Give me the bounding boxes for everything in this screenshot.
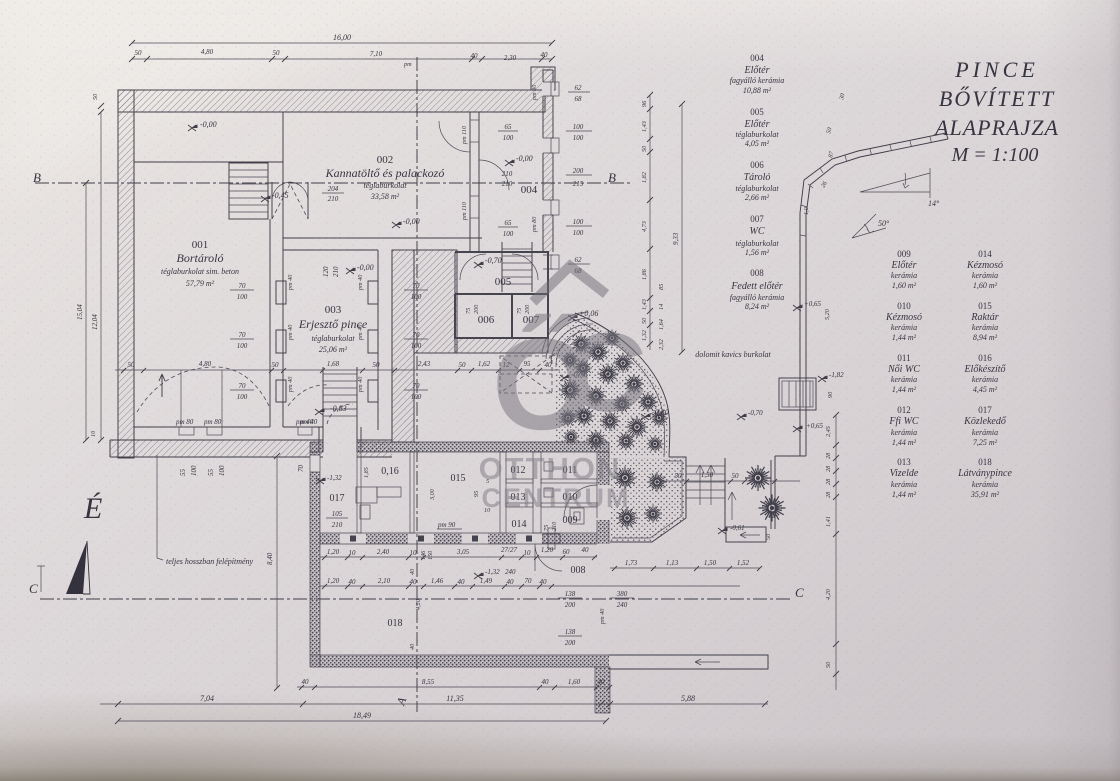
- svg-text:Kézmosó: Kézmosó: [966, 260, 1003, 271]
- svg-text:50°: 50°: [878, 219, 890, 228]
- svg-text:002: 002: [377, 154, 394, 166]
- svg-text:50: 50: [765, 533, 772, 540]
- svg-text:25,06 m²: 25,06 m²: [319, 345, 348, 354]
- svg-text:70: 70: [413, 282, 421, 290]
- svg-text:1,68: 1,68: [327, 360, 340, 368]
- svg-text:004: 004: [521, 184, 538, 196]
- svg-text:pm 80: pm 80: [531, 84, 538, 101]
- svg-text:28: 28: [825, 491, 832, 498]
- svg-text:teljes hosszban felépítmény: teljes hosszban felépítmény: [166, 557, 254, 566]
- svg-text:16,00: 16,00: [333, 33, 351, 42]
- svg-text:pm 80: pm 80: [531, 216, 538, 233]
- svg-text:015: 015: [451, 473, 466, 484]
- svg-text:1,60 m²: 1,60 m²: [973, 281, 998, 290]
- svg-text:68: 68: [575, 95, 583, 103]
- svg-text:50: 50: [128, 361, 136, 369]
- svg-text:1,0: 1,0: [803, 206, 810, 215]
- svg-text:0,16: 0,16: [381, 466, 399, 477]
- svg-text:210: 210: [332, 521, 343, 529]
- svg-text:-0,45: -0,45: [272, 191, 289, 200]
- svg-text:62: 62: [575, 84, 583, 92]
- svg-text:pm 40: pm 40: [287, 274, 294, 291]
- svg-text:210: 210: [502, 180, 513, 188]
- svg-text:pm 40: pm 40: [287, 376, 294, 393]
- svg-text:7,25 m²: 7,25 m²: [973, 438, 998, 447]
- svg-text:016: 016: [978, 353, 992, 363]
- svg-text:1,60 m²: 1,60 m²: [892, 281, 917, 290]
- svg-text:2,40: 2,40: [377, 548, 390, 556]
- svg-text:40: 40: [409, 643, 416, 650]
- svg-text:-0,60: -0,60: [652, 408, 669, 417]
- svg-text:kerámia: kerámia: [891, 480, 917, 489]
- svg-text:40: 40: [598, 678, 606, 686]
- svg-text:75: 75: [465, 308, 472, 314]
- svg-text:Közlekedő: Közlekedő: [963, 416, 1007, 427]
- svg-text:pm 40: pm 40: [295, 418, 314, 426]
- svg-text:100: 100: [503, 230, 514, 238]
- svg-text:2,45: 2,45: [825, 426, 832, 437]
- svg-text:4,80: 4,80: [201, 48, 214, 56]
- svg-text:014: 014: [978, 249, 992, 259]
- svg-text:1,41: 1,41: [825, 516, 832, 527]
- svg-text:70: 70: [239, 282, 247, 290]
- svg-text:50: 50: [373, 361, 381, 369]
- svg-text:96: 96: [641, 100, 648, 107]
- svg-text:pm 40: pm 40: [357, 324, 364, 341]
- svg-text:50: 50: [641, 145, 648, 152]
- svg-text:150: 150: [427, 550, 434, 560]
- svg-text:-0,70: -0,70: [485, 256, 502, 265]
- svg-text:pm 110: pm 110: [461, 201, 468, 221]
- svg-text:-0,61: -0,61: [730, 524, 745, 532]
- svg-text:8,55: 8,55: [422, 678, 435, 686]
- svg-text:40: 40: [507, 578, 515, 586]
- svg-text:Kézmosó: Kézmosó: [885, 312, 922, 323]
- svg-text:fagyálló kerámia: fagyálló kerámia: [730, 293, 784, 302]
- svg-text:kerámia: kerámia: [891, 271, 917, 280]
- svg-text:28: 28: [825, 478, 832, 485]
- svg-text:Raktár: Raktár: [970, 312, 998, 323]
- svg-text:4,05 m²: 4,05 m²: [745, 139, 770, 148]
- svg-text:85: 85: [658, 284, 665, 290]
- svg-text:017: 017: [978, 405, 992, 415]
- svg-text:Előtér: Előtér: [744, 65, 770, 76]
- svg-text:50: 50: [272, 361, 280, 369]
- svg-text:210: 210: [328, 195, 339, 203]
- svg-text:40: 40: [410, 578, 418, 586]
- svg-text:1,43: 1,43: [641, 299, 648, 310]
- svg-text:Női WC: Női WC: [887, 364, 920, 375]
- svg-text:5,20: 5,20: [824, 308, 831, 320]
- svg-text:C: C: [566, 310, 647, 435]
- svg-text:Előkészítő: Előkészítő: [963, 364, 1006, 375]
- svg-text:40: 40: [541, 51, 549, 59]
- svg-text:7,10: 7,10: [370, 50, 383, 58]
- svg-text:70: 70: [413, 382, 421, 390]
- svg-text:100: 100: [411, 342, 422, 350]
- svg-text:M = 1:100: M = 1:100: [951, 144, 1039, 166]
- svg-text:005: 005: [750, 107, 764, 117]
- svg-text:50: 50: [675, 472, 683, 480]
- svg-text:pm 80: pm 80: [175, 418, 194, 426]
- svg-text:138: 138: [565, 628, 576, 636]
- svg-text:50: 50: [273, 49, 281, 57]
- svg-text:+0,65: +0,65: [804, 300, 821, 308]
- svg-text:017: 017: [330, 493, 345, 504]
- svg-text:70: 70: [525, 577, 533, 585]
- svg-text:210: 210: [551, 521, 558, 531]
- svg-text:C: C: [795, 585, 804, 600]
- svg-text:8,94 m²: 8,94 m²: [973, 333, 998, 342]
- svg-text:50: 50: [135, 49, 143, 57]
- svg-text:kerámia: kerámia: [891, 428, 917, 437]
- svg-text:Vizelde: Vizelde: [890, 468, 919, 479]
- svg-text:18,49: 18,49: [353, 711, 371, 720]
- svg-text:8,40: 8,40: [266, 552, 274, 565]
- svg-text:pm 40: pm 40: [599, 608, 606, 625]
- svg-text:62: 62: [575, 256, 583, 264]
- svg-text:10: 10: [524, 549, 532, 557]
- svg-text:pm 80: pm 80: [203, 418, 222, 426]
- svg-text:1,46: 1,46: [431, 577, 444, 585]
- svg-text:40: 40: [458, 578, 466, 586]
- svg-text:kerámia: kerámia: [972, 428, 998, 437]
- svg-text:PINCE: PINCE: [954, 57, 1039, 82]
- svg-text:100: 100: [573, 218, 584, 226]
- svg-text:200: 200: [565, 601, 576, 609]
- svg-text:27/27: 27/27: [501, 546, 517, 554]
- svg-text:50: 50: [825, 661, 832, 668]
- svg-text:004: 004: [750, 53, 764, 63]
- svg-text:4,73: 4,73: [641, 221, 648, 232]
- svg-text:1,43: 1,43: [641, 121, 648, 132]
- svg-text:kerámia: kerámia: [891, 375, 917, 384]
- svg-text:011: 011: [897, 353, 910, 363]
- svg-text:018: 018: [388, 618, 403, 629]
- svg-text:40: 40: [540, 578, 548, 586]
- svg-text:1,56 m²: 1,56 m²: [745, 248, 770, 257]
- svg-text:-0,00: -0,00: [200, 120, 217, 129]
- svg-text:200: 200: [565, 639, 576, 647]
- svg-text:pm 40: pm 40: [357, 274, 364, 291]
- svg-text:70: 70: [413, 331, 421, 339]
- svg-text:28: 28: [825, 465, 832, 472]
- svg-text:240: 240: [505, 568, 516, 576]
- svg-text:210: 210: [332, 266, 340, 277]
- svg-text:65: 65: [505, 219, 513, 227]
- svg-text:007: 007: [750, 214, 764, 224]
- svg-text:012: 012: [897, 405, 911, 415]
- svg-text:Fedett előtér: Fedett előtér: [730, 281, 782, 292]
- svg-text:003: 003: [325, 304, 342, 316]
- svg-text:009: 009: [897, 249, 911, 259]
- svg-text:1,60: 1,60: [568, 678, 581, 686]
- svg-text:-0,70: -0,70: [748, 409, 763, 417]
- svg-text:200: 200: [573, 167, 584, 175]
- svg-text:pm 40: pm 40: [357, 376, 364, 393]
- svg-text:10: 10: [410, 549, 418, 557]
- svg-text:100: 100: [573, 229, 584, 237]
- svg-text:-1,82: -1,82: [829, 371, 844, 379]
- svg-text:2,43: 2,43: [418, 360, 431, 368]
- svg-text:3,05: 3,05: [456, 548, 470, 556]
- svg-text:1,86: 1,86: [641, 268, 648, 280]
- svg-text:kerámia: kerámia: [972, 323, 998, 332]
- svg-text:28: 28: [825, 452, 832, 459]
- svg-text:Kannatöltő és palackozó: Kannatöltő és palackozó: [325, 166, 445, 180]
- svg-text:010: 010: [897, 301, 911, 311]
- svg-text:-0,00: -0,00: [357, 263, 374, 272]
- svg-text:OTTHON: OTTHON: [479, 451, 622, 486]
- svg-text:100: 100: [218, 465, 226, 476]
- svg-text:008: 008: [571, 565, 586, 576]
- svg-text:2,10: 2,10: [378, 577, 391, 585]
- svg-text:120: 120: [322, 266, 330, 277]
- svg-text:téglaburkolat: téglaburkolat: [735, 184, 779, 193]
- svg-text:70: 70: [239, 331, 247, 339]
- svg-text:40: 40: [542, 678, 550, 686]
- svg-text:11,35: 11,35: [446, 694, 463, 703]
- svg-text:pm 40: pm 40: [287, 324, 294, 341]
- svg-text:013: 013: [897, 457, 911, 467]
- svg-text:1,20: 1,20: [327, 548, 340, 556]
- svg-text:70: 70: [239, 382, 247, 390]
- svg-text:006: 006: [750, 160, 764, 170]
- svg-text:1,13: 1,13: [666, 559, 679, 567]
- svg-text:100: 100: [573, 134, 584, 142]
- svg-text:4,20: 4,20: [415, 598, 422, 610]
- svg-text:WC: WC: [750, 226, 765, 237]
- svg-text:008: 008: [750, 268, 764, 278]
- svg-text:1,82: 1,82: [641, 172, 648, 183]
- svg-text:CENTRUM: CENTRUM: [482, 483, 631, 513]
- svg-text:50: 50: [732, 472, 740, 480]
- svg-text:4,20: 4,20: [825, 588, 832, 600]
- svg-text:65: 65: [505, 123, 513, 131]
- svg-text:55: 55: [179, 469, 187, 477]
- svg-text:1,50: 1,50: [704, 559, 717, 567]
- svg-text:1,62: 1,62: [478, 360, 491, 368]
- svg-text:1,52: 1,52: [737, 559, 750, 567]
- svg-text:100: 100: [237, 342, 248, 350]
- svg-text:95: 95: [473, 491, 480, 497]
- svg-text:1,44 m²: 1,44 m²: [892, 385, 917, 394]
- svg-text:215: 215: [573, 180, 584, 188]
- svg-text:50: 50: [459, 361, 467, 369]
- svg-text:B: B: [33, 170, 41, 185]
- svg-text:fagyálló kerámia: fagyálló kerámia: [730, 76, 784, 85]
- svg-text:100: 100: [190, 465, 198, 476]
- svg-text:105: 105: [332, 510, 343, 518]
- svg-text:dolomit kavics burkolat: dolomit kavics burkolat: [695, 350, 771, 359]
- svg-text:14°: 14°: [928, 199, 940, 208]
- svg-text:33,58 m²: 33,58 m²: [370, 192, 400, 201]
- svg-text:204: 204: [328, 185, 339, 193]
- svg-text:1,20: 1,20: [541, 546, 554, 554]
- svg-text:É: É: [83, 492, 102, 525]
- svg-text:téglaburkolat: téglaburkolat: [735, 239, 779, 248]
- svg-text:70: 70: [757, 471, 765, 479]
- svg-text:60: 60: [563, 548, 571, 556]
- svg-text:70: 70: [297, 465, 305, 473]
- svg-text:100: 100: [573, 123, 584, 131]
- svg-text:40: 40: [471, 52, 479, 60]
- svg-text:BŐVÍTETT: BŐVÍTETT: [939, 86, 1055, 111]
- svg-text:pm: pm: [403, 61, 412, 68]
- svg-text:40: 40: [302, 678, 310, 686]
- svg-text:ALAPRAJZA: ALAPRAJZA: [933, 115, 1059, 140]
- svg-text:8,24 m²: 8,24 m²: [745, 302, 770, 311]
- svg-text:téglaburkolat: téglaburkolat: [735, 130, 779, 139]
- svg-text:téglaburkolat sim. beton: téglaburkolat sim. beton: [161, 267, 239, 276]
- svg-text:pm 110: pm 110: [461, 125, 468, 145]
- svg-text:C: C: [29, 581, 38, 596]
- svg-text:4,80: 4,80: [199, 360, 212, 368]
- svg-text:kerámia: kerámia: [972, 480, 998, 489]
- svg-text:005: 005: [495, 276, 512, 288]
- svg-text:10: 10: [90, 430, 97, 437]
- svg-text:-0,83: -0,83: [330, 404, 347, 413]
- svg-text:15,04: 15,04: [76, 304, 84, 320]
- svg-text:210: 210: [502, 170, 513, 178]
- svg-text:+0,65: +0,65: [806, 422, 823, 430]
- svg-text:Bortároló: Bortároló: [177, 251, 224, 265]
- svg-text:1,73: 1,73: [625, 559, 638, 567]
- svg-text:5,88: 5,88: [681, 694, 695, 703]
- svg-text:Ffi WC: Ffi WC: [888, 416, 918, 427]
- svg-text:kerámia: kerámia: [972, 271, 998, 280]
- svg-text:B: B: [608, 170, 616, 185]
- svg-text:1,64: 1,64: [658, 319, 665, 330]
- svg-text:-1,32: -1,32: [327, 474, 342, 482]
- svg-text:100: 100: [503, 134, 514, 142]
- svg-text:1,44 m²: 1,44 m²: [892, 333, 917, 342]
- svg-text:014: 014: [512, 519, 527, 530]
- svg-text:200: 200: [473, 304, 480, 314]
- svg-text:12,04: 12,04: [91, 314, 99, 330]
- svg-text:Látványpince: Látványpince: [957, 468, 1012, 479]
- svg-text:1,20: 1,20: [327, 577, 340, 585]
- svg-text:100: 100: [411, 393, 422, 401]
- svg-text:7,04: 7,04: [200, 694, 214, 703]
- svg-text:100: 100: [411, 293, 422, 301]
- svg-text:35,91 m²: 35,91 m²: [970, 490, 1000, 499]
- svg-text:240: 240: [617, 601, 628, 609]
- svg-text:40: 40: [409, 568, 416, 575]
- svg-text:10: 10: [349, 549, 357, 557]
- svg-text:pm 90: pm 90: [437, 521, 456, 529]
- svg-text:90: 90: [827, 391, 834, 398]
- svg-text:2,30: 2,30: [504, 54, 517, 62]
- svg-text:1,44 m²: 1,44 m²: [892, 438, 917, 447]
- svg-text:-1,32: -1,32: [485, 568, 500, 576]
- svg-text:50: 50: [92, 93, 99, 100]
- svg-text:001: 001: [192, 239, 209, 251]
- svg-text:14: 14: [658, 304, 665, 310]
- svg-text:138: 138: [565, 590, 576, 598]
- svg-text:téglaburkolat: téglaburkolat: [311, 334, 355, 343]
- svg-text:Előtér: Előtér: [744, 119, 770, 130]
- svg-text:1,50: 1,50: [701, 471, 714, 479]
- svg-text:2,32: 2,32: [658, 339, 665, 350]
- svg-text:40: 40: [582, 546, 590, 554]
- svg-text:57,79 m²: 57,79 m²: [186, 279, 215, 288]
- svg-text:1,49: 1,49: [480, 577, 493, 585]
- svg-text:1,44 m²: 1,44 m²: [892, 490, 917, 499]
- svg-text:55: 55: [207, 469, 215, 477]
- svg-text:380: 380: [616, 590, 628, 598]
- svg-text:100: 100: [237, 393, 248, 401]
- svg-text:9,33: 9,33: [672, 232, 680, 245]
- svg-text:kerámia: kerámia: [972, 375, 998, 384]
- svg-text:4,45 m²: 4,45 m²: [973, 385, 998, 394]
- svg-text:3,00: 3,00: [429, 488, 436, 501]
- svg-text:40: 40: [349, 578, 357, 586]
- svg-text:10,88 m²: 10,88 m²: [743, 86, 772, 95]
- svg-text:015: 015: [978, 301, 992, 311]
- svg-text:009: 009: [563, 515, 578, 526]
- svg-text:-0,00: -0,00: [516, 154, 533, 163]
- svg-text:Előtér: Előtér: [891, 260, 917, 271]
- svg-text:kerámia: kerámia: [891, 323, 917, 332]
- svg-text:téglaburkolat: téglaburkolat: [363, 181, 407, 190]
- svg-text:2,66 m²: 2,66 m²: [745, 193, 770, 202]
- svg-text:1,85: 1,85: [363, 467, 370, 478]
- svg-text:146: 146: [420, 550, 427, 560]
- svg-text:Tároló: Tároló: [744, 172, 771, 183]
- svg-text:018: 018: [978, 457, 992, 467]
- svg-text:100: 100: [237, 293, 248, 301]
